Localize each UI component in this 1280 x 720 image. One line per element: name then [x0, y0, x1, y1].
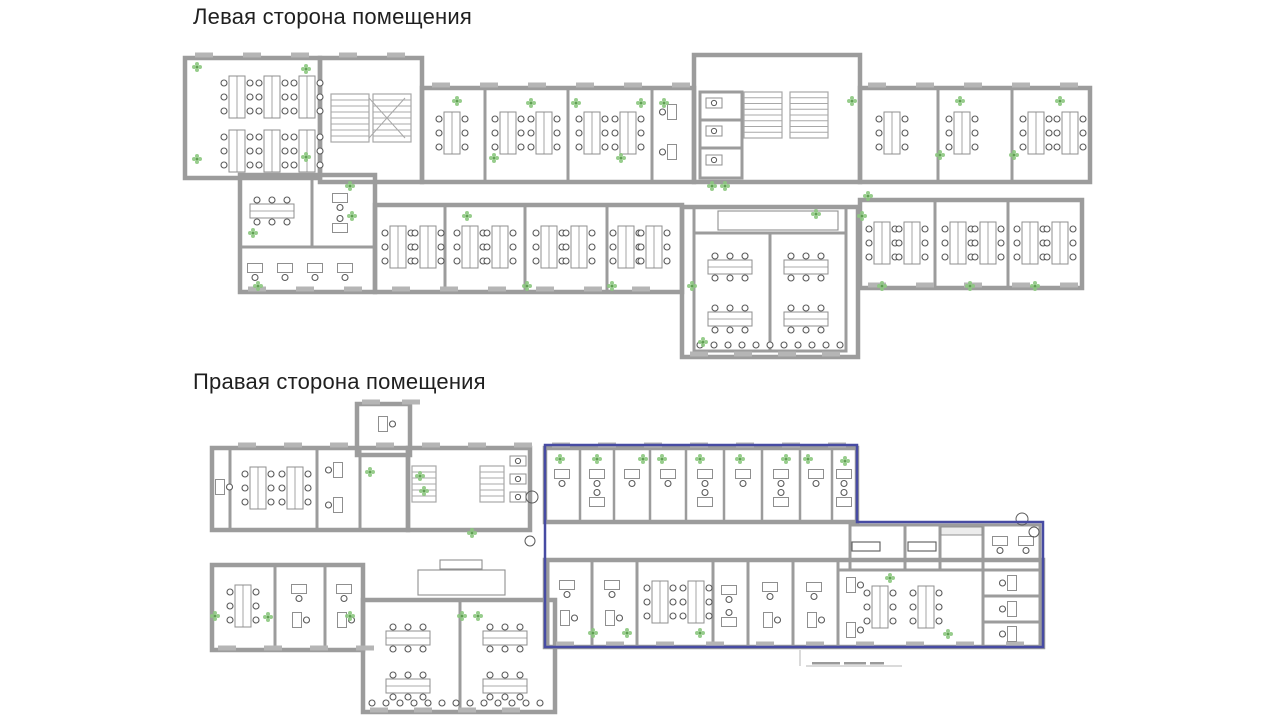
floorplans-canvas: [0, 0, 1280, 720]
floorplan-page: Левая сторона помещения Правая сторона п…: [0, 0, 1280, 720]
left-side-floorplan: [185, 53, 1090, 358]
right-side-floorplan: [210, 400, 1043, 713]
footnote-annotation: [800, 650, 902, 666]
